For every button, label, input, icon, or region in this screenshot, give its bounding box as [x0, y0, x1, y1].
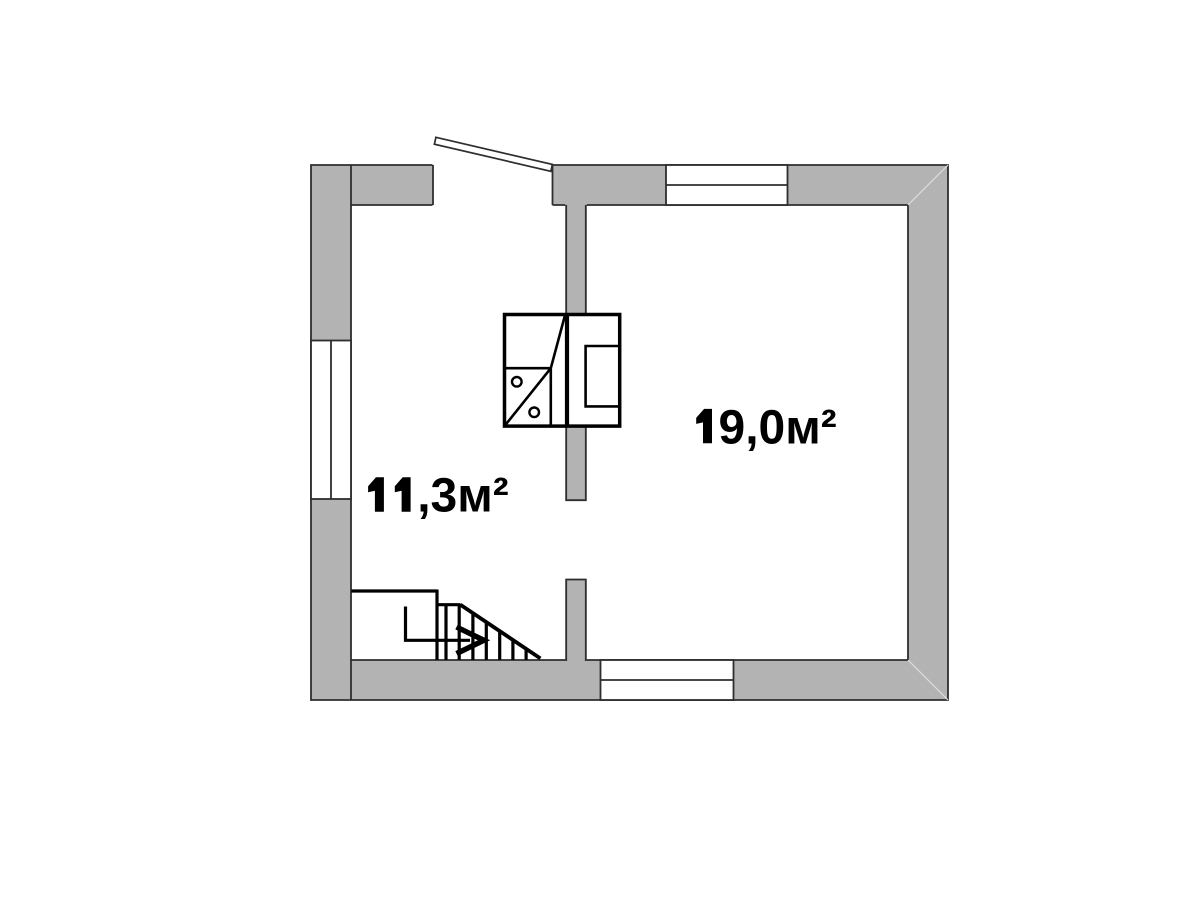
- svg-text:,3м²: ,3м²: [417, 470, 509, 523]
- svg-text:9,0м²: 9,0м²: [719, 401, 837, 454]
